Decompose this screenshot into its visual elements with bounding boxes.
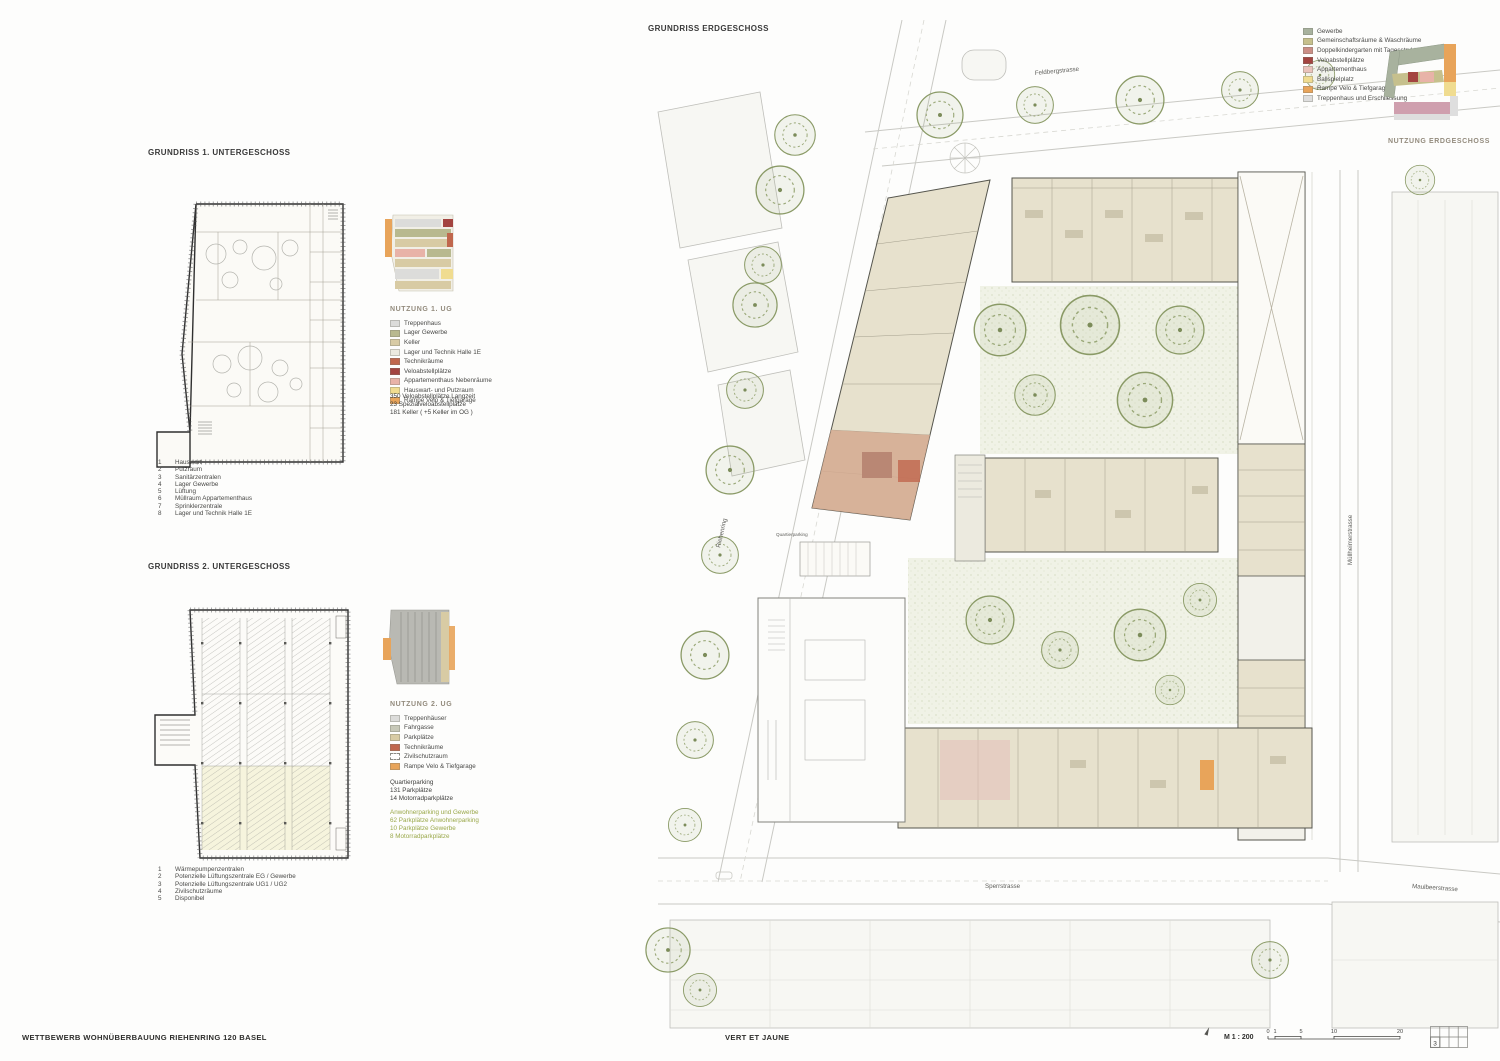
key-label: Lager und Technik Halle 1E xyxy=(175,510,252,517)
key-row: 5 Disponibel xyxy=(158,895,296,902)
key-label: Disponibel xyxy=(175,895,204,902)
legend-item-label: Treppenhaus xyxy=(404,321,441,327)
legend-swatch xyxy=(390,753,400,760)
legend-title-ug2: NUTZUNG 2. UG xyxy=(390,701,452,708)
key-label: Zivilschutzräume xyxy=(175,888,222,895)
stats-ug2-green: Anwohnerparking und Gewerbe62 Parkplätze… xyxy=(390,809,479,841)
legend-item-label: Lager Gewerbe xyxy=(404,330,447,336)
scale-tick-4: 20 xyxy=(1397,1029,1403,1035)
stat-line: 8 Motorradparkplätze xyxy=(390,833,479,841)
legend-swatch xyxy=(1303,76,1313,83)
legend-item: Technikräume xyxy=(390,358,492,365)
legend-item-label: Rampe Velo & Tiefgarage xyxy=(404,764,476,770)
legend-item: Keller xyxy=(390,339,492,346)
legend-swatch xyxy=(1303,66,1313,73)
key-number: 1 xyxy=(158,866,175,873)
key-number: 5 xyxy=(158,488,175,495)
scale-tick-3: 10 xyxy=(1331,1029,1337,1035)
street-label-east: Müllheimerstrasse xyxy=(1347,514,1354,565)
key-number: 8 xyxy=(158,510,175,517)
legend-item: Gewerbe xyxy=(1303,28,1422,35)
key-number: 3 xyxy=(158,474,175,481)
street-label-south: Sperrstrasse xyxy=(985,883,1021,890)
legend-swatch xyxy=(1303,57,1313,64)
stat-line: 10 Parkplätze Gewerbe xyxy=(390,825,479,833)
legend-swatch xyxy=(390,358,400,365)
title-ug2: GRUNDRISS 2. UNTERGESCHOSS xyxy=(148,562,290,571)
sheet-index-number: 3 xyxy=(1433,1041,1437,1048)
key-label: Lager Gewerbe xyxy=(175,481,218,488)
key-label: Lüftung xyxy=(175,488,196,495)
minikey-ug2 xyxy=(383,600,459,692)
stat-line: 181 Keller ( +5 Keller im OG ) xyxy=(390,409,475,417)
legend-ug1: Treppenhaus Lager Gewerbe Keller Lager u… xyxy=(390,320,492,404)
key-row: 3 Sanitärzentralen xyxy=(158,474,252,481)
legend-swatch xyxy=(390,725,400,732)
legend-ug2: Treppenhäuser Fahrgasse Parkplätze Techn… xyxy=(390,715,476,770)
scale-tick-1: 1 xyxy=(1273,1029,1276,1035)
legend-title-ug1: NUTZUNG 1. UG xyxy=(390,306,452,313)
scale-tick-0: 0 xyxy=(1266,1029,1269,1035)
north-arrow-icon xyxy=(1196,1025,1216,1045)
legend-item: Parkplätze xyxy=(390,734,476,741)
key-number: 1 xyxy=(158,459,175,466)
key-label: Potenzielle Lüftungszentrale UG1 / UG2 xyxy=(175,881,287,888)
legend-item-label: Zivilschutzraum xyxy=(404,754,448,760)
stat-line: Quartierparking xyxy=(390,779,453,787)
legend-item-label: Keller xyxy=(404,340,420,346)
legend-item-label: Gewerbe xyxy=(1317,29,1343,35)
footer-project-title: WETTBEWERB WOHNÜBERBAUUNG RIEHENRING 120… xyxy=(22,1033,267,1042)
stats-ug1: 350 Veloabstellplätze Langzeit23 Spezial… xyxy=(390,393,475,417)
legend-item: Lager und Technik Halle 1E xyxy=(390,349,492,356)
legend-swatch xyxy=(1303,28,1313,35)
title-ug1: GRUNDRISS 1. UNTERGESCHOSS xyxy=(148,148,290,157)
key-row: 1 Wärmepumpenzentralen xyxy=(158,866,296,873)
key-number: 6 xyxy=(158,495,175,502)
plan-eg-drawing: Feldbergstrasse Riehenring Müllheimerstr… xyxy=(640,20,1500,1030)
legend-swatch xyxy=(1303,47,1313,54)
legend-swatch xyxy=(1303,38,1313,45)
key-row: 4 Lager Gewerbe xyxy=(158,481,252,488)
legend-item-label: Appartementhaus Nebenräume xyxy=(404,378,492,384)
legend-item: Rampe Velo & Tiefgarage xyxy=(390,763,476,770)
street-label-north: Feldbergstrasse xyxy=(1035,66,1080,77)
legend-item-label: Lager und Technik Halle 1E xyxy=(404,350,481,356)
key-row: 5 Lüftung xyxy=(158,488,252,495)
stat-line: 14 Motorradparkplätze xyxy=(390,795,453,803)
key-row: 2 Potenzielle Lüftungszentrale EG / Gewe… xyxy=(158,873,296,880)
legend-swatch xyxy=(390,744,400,751)
key-row: 3 Potenzielle Lüftungszentrale UG1 / UG2 xyxy=(158,881,296,888)
legend-item-label: Parkplätze xyxy=(404,735,434,741)
legend-swatch xyxy=(1303,86,1313,93)
street-label-southeast: Maulbeerstrasse xyxy=(1412,883,1459,893)
key-number: 5 xyxy=(158,895,175,902)
legend-swatch xyxy=(1303,95,1313,102)
key-row: 6 Müllraum Appartementhaus xyxy=(158,495,252,502)
legend-item-label: Appartementhaus xyxy=(1317,67,1367,73)
keylist-ug2: 1 Wärmepumpenzentralen 2 Potenzielle Lüf… xyxy=(158,866,296,902)
footer-motto: VERT ET JAUNE xyxy=(725,1033,789,1042)
minikey-ug1 xyxy=(383,203,463,299)
legend-item-label: Technikräume xyxy=(404,359,443,365)
key-label: Sprinklerzentrale xyxy=(175,503,222,510)
competition-board-sheet: GRUNDRISS 1. UNTERGESCHOSS NUTZUN xyxy=(0,0,1500,1061)
legend-swatch xyxy=(390,368,400,375)
key-row: 7 Sprinklerzentrale xyxy=(158,503,252,510)
scale-tick-2: 5 xyxy=(1299,1029,1302,1035)
legend-item-label: Veloabstellplätze xyxy=(404,369,451,375)
legend-swatch xyxy=(390,378,400,385)
ramp-label: Quartierparking xyxy=(776,532,808,537)
legend-item: Veloabstellplätze xyxy=(390,368,492,375)
key-row: 4 Zivilschutzräume xyxy=(158,888,296,895)
sheet-index-grid: 3 xyxy=(1430,1026,1468,1048)
key-number: 4 xyxy=(158,481,175,488)
key-number: 2 xyxy=(158,873,175,880)
scale-label: M 1 : 200 xyxy=(1224,1034,1254,1041)
keylist-ug1: 1 Hauswart 2 Putzraum 3 Sanitärzentralen… xyxy=(158,459,252,517)
key-number: 4 xyxy=(158,888,175,895)
plan-ug1-drawing xyxy=(138,192,380,474)
legend-item-label: Fahrgasse xyxy=(404,725,434,731)
legend-swatch xyxy=(390,330,400,337)
minikey-eg xyxy=(1378,38,1462,134)
key-row: 2 Putzraum xyxy=(158,466,252,473)
legend-title-eg: NUTZUNG ERDGESCHOSS xyxy=(1388,138,1490,145)
legend-swatch xyxy=(390,734,400,741)
stat-line: 62 Parkplätze Anwohnerparking xyxy=(390,817,479,825)
legend-item-label: Ballspielplatz xyxy=(1317,77,1354,83)
key-number: 2 xyxy=(158,466,175,473)
legend-item-label: Veloabstellplätze xyxy=(1317,58,1364,64)
key-row: 8 Lager und Technik Halle 1E xyxy=(158,510,252,517)
legend-swatch xyxy=(390,349,400,356)
plan-ug2-drawing xyxy=(150,598,362,868)
key-number: 7 xyxy=(158,503,175,510)
legend-item-label: Technikräume xyxy=(404,745,443,751)
key-number: 3 xyxy=(158,881,175,888)
key-label: Hauswart xyxy=(175,459,202,466)
new-buildings xyxy=(758,172,1312,840)
legend-swatch xyxy=(390,763,400,770)
stat-line: 131 Parkplätze xyxy=(390,787,453,795)
key-label: Wärmepumpenzentralen xyxy=(175,866,244,873)
stat-line: 23 Spezialveloabstellplätze xyxy=(390,401,475,409)
legend-item: Treppenhäuser xyxy=(390,715,476,722)
legend-item-label: Treppenhäuser xyxy=(404,716,446,722)
legend-item: Fahrgasse xyxy=(390,725,476,732)
legend-swatch xyxy=(390,339,400,346)
legend-swatch xyxy=(390,320,400,327)
key-label: Müllraum Appartementhaus xyxy=(175,495,252,502)
key-label: Sanitärzentralen xyxy=(175,474,221,481)
legend-item: Technikräume xyxy=(390,744,476,751)
stats-ug2-black: Quartierparking131 Parkplätze14 Motorrad… xyxy=(390,779,453,803)
key-label: Potenzielle Lüftungszentrale EG / Gewerb… xyxy=(175,873,296,880)
legend-swatch xyxy=(390,715,400,722)
key-label: Putzraum xyxy=(175,466,202,473)
stat-line: Anwohnerparking und Gewerbe xyxy=(390,809,479,817)
legend-item: Treppenhaus xyxy=(390,320,492,327)
stat-line: 350 Veloabstellplätze Langzeit xyxy=(390,393,475,401)
scale-bar: 0 1 5 10 20 xyxy=(1264,1024,1410,1050)
legend-item: Zivilschutzraum xyxy=(390,753,476,760)
key-row: 1 Hauswart xyxy=(158,459,252,466)
legend-item: Appartementhaus Nebenräume xyxy=(390,378,492,385)
legend-item: Lager Gewerbe xyxy=(390,330,492,337)
